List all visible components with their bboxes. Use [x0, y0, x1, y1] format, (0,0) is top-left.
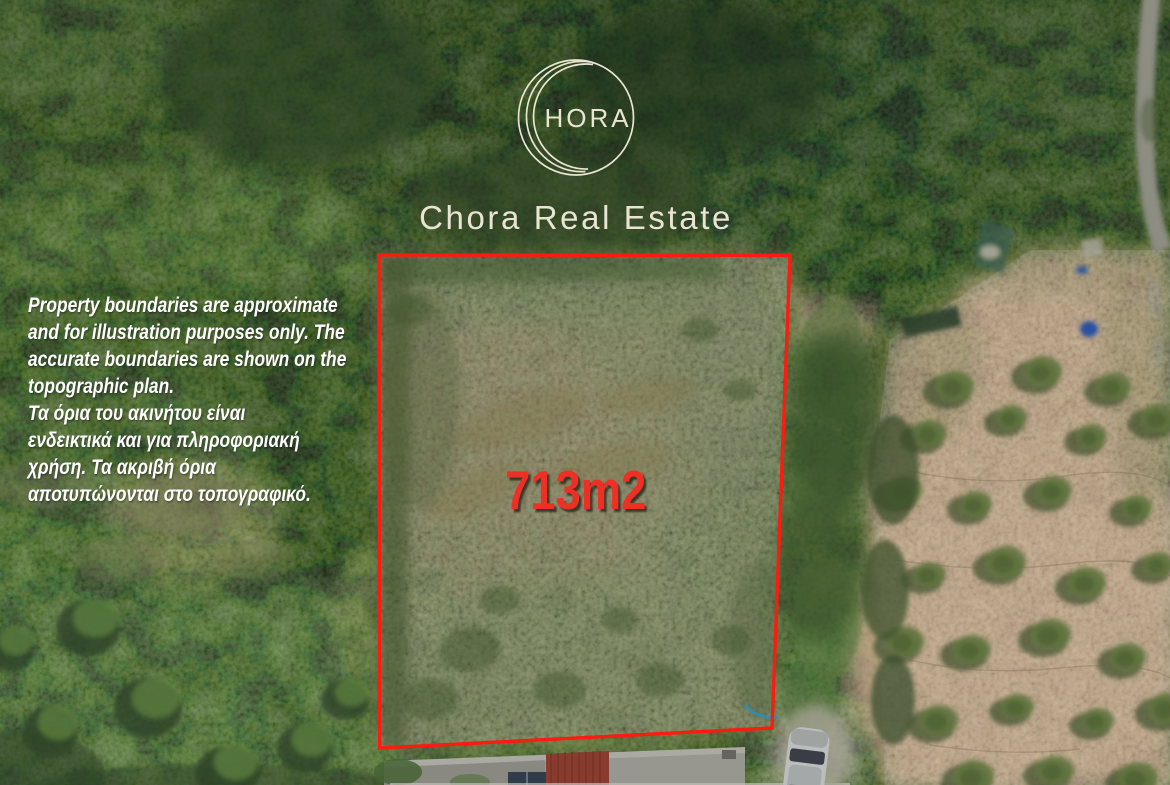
svg-text:HORA: HORA: [544, 103, 631, 133]
svg-text:Chora Real Estate: Chora Real Estate: [419, 199, 733, 236]
